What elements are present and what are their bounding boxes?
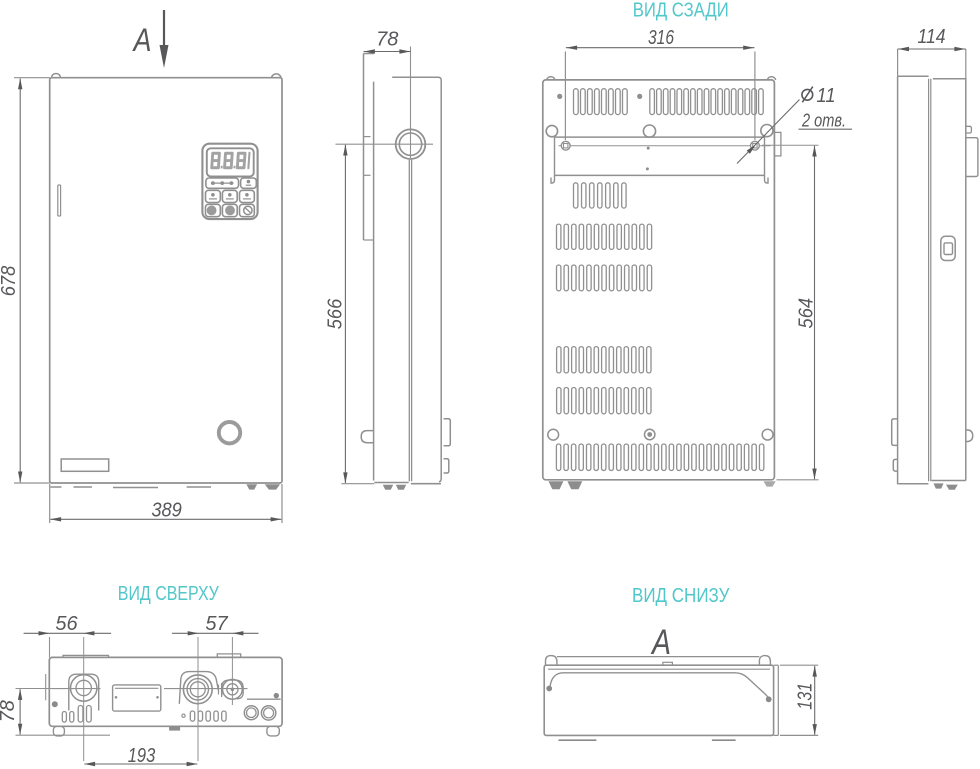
svg-text:57: 57	[205, 613, 228, 635]
svg-text:2 отв.: 2 отв.	[801, 110, 846, 130]
svg-text:78: 78	[376, 28, 398, 50]
svg-text:389: 389	[151, 500, 182, 522]
svg-text:ВИД СВЕРХУ: ВИД СВЕРХУ	[118, 582, 220, 605]
svg-text:11: 11	[817, 85, 836, 107]
svg-text:131: 131	[794, 683, 816, 710]
svg-text:ВИД СЗАДИ: ВИД СЗАДИ	[633, 0, 729, 21]
svg-text:56: 56	[55, 613, 78, 635]
svg-text:ВИД СНИЗУ: ВИД СНИЗУ	[632, 584, 730, 607]
svg-text:564: 564	[796, 298, 818, 329]
svg-text:114: 114	[918, 26, 946, 48]
svg-text:A: A	[132, 22, 152, 58]
svg-text:78: 78	[0, 700, 19, 722]
svg-text:316: 316	[648, 27, 675, 49]
svg-text:678: 678	[0, 266, 20, 297]
svg-text:566: 566	[325, 298, 347, 329]
